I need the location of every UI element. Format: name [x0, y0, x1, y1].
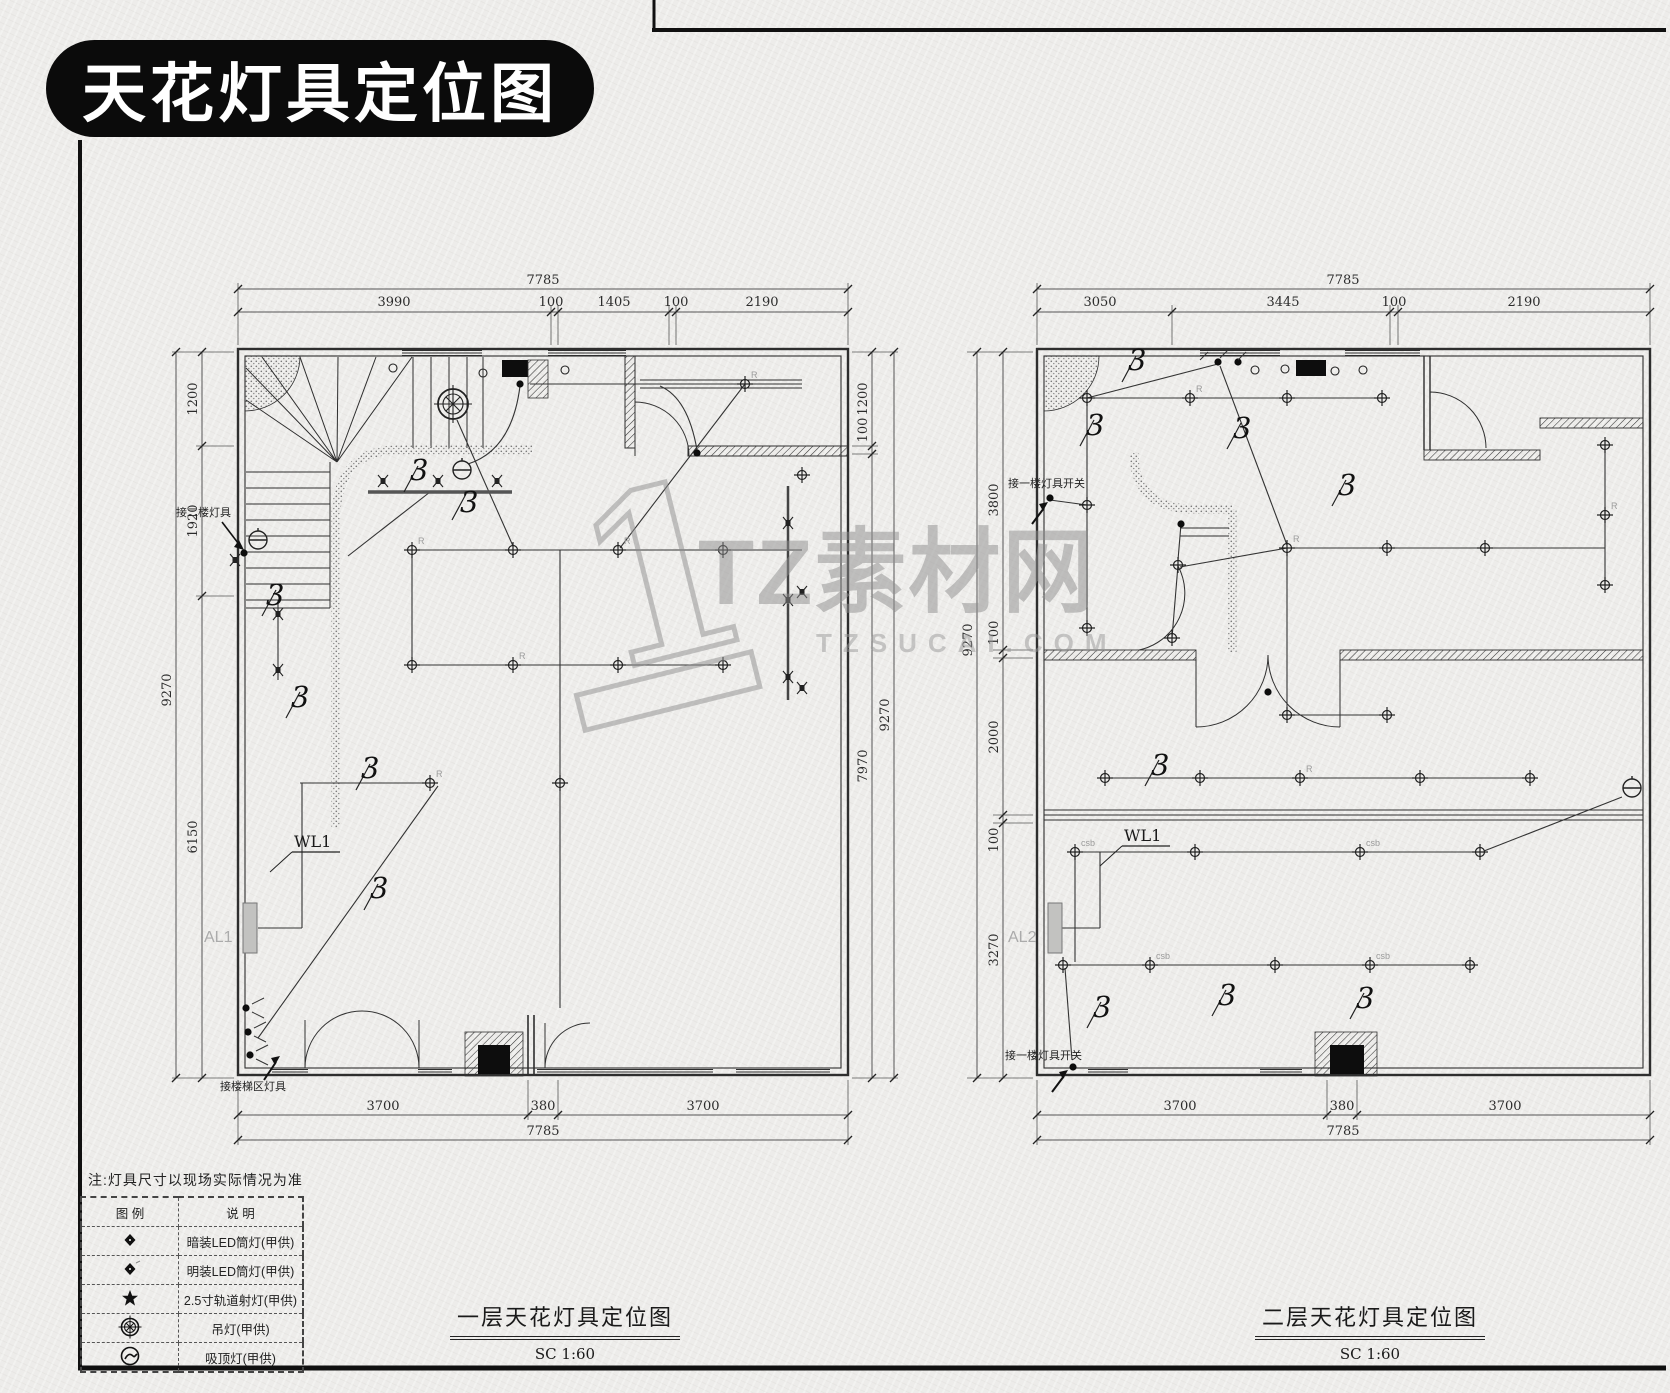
svg-text:3050: 3050 [1083, 295, 1116, 310]
legend-desc: 明装LED筒灯(甲供) [179, 1256, 304, 1285]
downlight-icon [1187, 844, 1203, 860]
svg-text:1200: 1200 [186, 382, 201, 415]
circuit-number: 3 [1233, 411, 1251, 445]
distribution-panel [1048, 903, 1062, 953]
ceiling-lamp-icon [453, 458, 471, 479]
light-code: R [751, 370, 758, 380]
downlight-icon [1597, 437, 1613, 453]
circuit-number: 3 [291, 680, 309, 714]
downlight-icon [1097, 770, 1113, 786]
circuit-number: 3 [1338, 468, 1356, 502]
ceiling-feature-black [1296, 360, 1326, 376]
second-floor-title: 二层天花灯具定位图 [1255, 1300, 1485, 1340]
legend-table: 图 例 说 明 暗装LED筒灯(甲供) 明装LED筒灯(甲供) 2.5寸轨道射灯… [80, 1196, 304, 1373]
switch-dot-icon [1046, 494, 1053, 501]
switch-dot-icon [240, 549, 247, 556]
svg-text:7970: 7970 [856, 749, 871, 782]
svg-text:2190: 2190 [1507, 295, 1540, 310]
title-banner: 天花灯具定位图 [46, 40, 594, 137]
recessed-downlight-icon [389, 364, 397, 372]
light-code: R [1196, 384, 1203, 394]
second-floor-circuit-labels: 3 3 3 3 3 3 3 3 [1080, 343, 1374, 1028]
first-floor-walls [238, 349, 848, 1075]
switch-dot-icon [1069, 1063, 1076, 1070]
svg-text:3700: 3700 [1163, 1099, 1196, 1114]
svg-text:100: 100 [1382, 295, 1407, 310]
pendant-light-icon [113, 1315, 147, 1339]
downlight-icon [715, 542, 731, 558]
recessed-led-downlight-icon [113, 1229, 147, 1251]
legend-col-symbol: 图 例 [81, 1197, 179, 1227]
svg-text:6150: 6150 [186, 820, 201, 853]
circuit-number: 3 [1356, 981, 1374, 1015]
surface-led-downlight-icon [113, 1258, 147, 1280]
first-floor-title: 一层天花灯具定位图 [450, 1300, 680, 1340]
legend-row: 吸顶灯(甲供) [81, 1343, 303, 1373]
downlight-icon [1477, 540, 1493, 556]
downlight-icon [1079, 497, 1095, 513]
fireplace [465, 1032, 523, 1076]
wl1-label: WL1 [294, 832, 331, 851]
svg-text:1200: 1200 [856, 382, 871, 415]
legend-col-desc: 说 明 [179, 1197, 304, 1227]
switch-dot-icon [516, 380, 523, 387]
svg-text:9270: 9270 [878, 698, 893, 731]
downlight-icon [1462, 957, 1478, 973]
downlight-icon [1597, 577, 1613, 593]
switch-dot-icon [244, 1028, 251, 1035]
downlight-icon [552, 775, 568, 791]
svg-text:2190: 2190 [745, 295, 778, 310]
legend-desc: 2.5寸轨道射灯(甲供) [179, 1285, 304, 1314]
svg-text:100: 100 [987, 621, 1002, 646]
first-floor-title-block: 一层天花灯具定位图 SC 1:60 [450, 1300, 680, 1363]
annotation-switch-bottom: 接一楼灯具开关 [1005, 1048, 1082, 1062]
switch-dot-icon [1214, 358, 1221, 365]
circuit-number: 3 [1151, 748, 1169, 782]
downlight-icon [1379, 707, 1395, 723]
switch-dot-icon [246, 1051, 253, 1058]
downlight-icon [1374, 390, 1390, 406]
downlight-icon [505, 542, 521, 558]
page-title: 天花灯具定位图 [82, 43, 558, 135]
downlight-icon [1522, 770, 1538, 786]
downlight-icon [1170, 557, 1186, 573]
drawing-sheet: R R R R R 3 3 3 3 3 3 接二楼灯具 WL1 AL1 接楼梯区… [0, 0, 1670, 1393]
first-floor-scale: SC 1:60 [450, 1345, 680, 1363]
distribution-panel [243, 903, 257, 953]
annotation-switch-top: 接一楼灯具开关 [1008, 476, 1085, 490]
svg-text:7785: 7785 [1326, 1124, 1359, 1139]
drawing-note: 注:灯具尺寸以现场实际情况为准 [88, 1170, 303, 1190]
legend-row: 暗装LED筒灯(甲供) [81, 1227, 303, 1256]
circuit-number: 3 [370, 871, 388, 905]
svg-text:1405: 1405 [597, 295, 630, 310]
svg-text:3990: 3990 [377, 295, 410, 310]
legend-desc: 吸顶灯(甲供) [179, 1343, 304, 1373]
switch-dot-icon [1177, 520, 1184, 527]
switch-dot-icon [693, 449, 700, 456]
svg-text:7785: 7785 [526, 1124, 559, 1139]
light-code: csb [1081, 838, 1095, 848]
track-spotlight-icon [113, 1287, 147, 1309]
ceiling-feature-hatch [528, 360, 548, 398]
second-floor-scale: SC 1:60 [1255, 1345, 1485, 1363]
svg-text:1920: 1920 [186, 504, 201, 537]
wall-light-icon [797, 682, 807, 694]
svg-text:2000: 2000 [987, 720, 1002, 753]
svg-text:100: 100 [987, 828, 1002, 853]
ceiling-lamp-icon [113, 1344, 147, 1368]
track-spotlight-icon [492, 475, 502, 487]
recessed-downlight-icon [1359, 366, 1367, 374]
circuit-number: 3 [460, 485, 478, 519]
svg-text:100: 100 [539, 295, 564, 310]
circuit-number: 3 [1086, 408, 1104, 442]
switch-dot-icon [242, 1004, 249, 1011]
downlight-icon [1192, 770, 1208, 786]
svg-text:3700: 3700 [366, 1099, 399, 1114]
dimension-ticks [172, 285, 898, 1144]
legend-desc: 暗装LED筒灯(甲供) [179, 1227, 304, 1256]
circuit-number: 3 [1218, 978, 1236, 1012]
svg-text:9270: 9270 [160, 673, 175, 706]
circuit-number: 3 [1128, 343, 1146, 377]
first-floor-lights: R R R R R [230, 360, 810, 1076]
ceiling-lamp-icon [249, 528, 267, 549]
first-floor-plan: R R R R R 3 3 3 3 3 3 接二楼灯具 WL1 AL1 接楼梯区… [160, 273, 898, 1145]
wall-light-icon [797, 586, 807, 598]
downlight-icon [1267, 957, 1283, 973]
second-floor-plan: R R R R csb csb csb csb 3 3 3 3 3 3 3 3 … [961, 273, 1654, 1145]
svg-text:100: 100 [856, 418, 871, 443]
downlight-icon [715, 657, 731, 673]
circuit-number: 3 [361, 751, 379, 785]
light-code: R [436, 769, 443, 779]
light-code: R [519, 651, 526, 661]
circuit-number: 3 [266, 578, 284, 612]
light-code: csb [1156, 951, 1170, 961]
annotation-stair-lights: 接楼梯区灯具 [220, 1079, 286, 1093]
downlight-icon [610, 657, 626, 673]
svg-text:3270: 3270 [987, 933, 1002, 966]
downlight-icon [1472, 844, 1488, 860]
svg-text:9270: 9270 [961, 623, 976, 656]
ceiling-feature-black [502, 360, 528, 377]
legend-row: 2.5寸轨道射灯(甲供) [81, 1285, 303, 1314]
downlight-icon [1279, 390, 1295, 406]
svg-text:380: 380 [1330, 1099, 1355, 1114]
downlight-icon [1379, 540, 1395, 556]
legend-row: 明装LED筒灯(甲供) [81, 1256, 303, 1285]
fireplace [1315, 1032, 1377, 1076]
legend-row: 吊灯(甲供) [81, 1314, 303, 1343]
light-code: R [1611, 501, 1618, 511]
light-code: csb [1376, 951, 1390, 961]
ceiling-lamp-icon [1623, 776, 1641, 797]
svg-text:7785: 7785 [1326, 273, 1359, 288]
light-code: R [418, 536, 425, 546]
al1-label: AL1 [204, 929, 233, 946]
legend-header-row: 图 例 说 明 [81, 1197, 303, 1227]
pendant-light-icon [434, 385, 472, 423]
second-floor-walls [1037, 349, 1650, 1075]
svg-text:7785: 7785 [526, 273, 559, 288]
annotation-second-floor: 接二楼灯具 [176, 505, 231, 519]
circuit-number: 3 [410, 453, 428, 487]
legend-desc: 吊灯(甲供) [179, 1314, 304, 1343]
downlight-icon [1412, 770, 1428, 786]
downlight-icon [1055, 957, 1071, 973]
second-floor-title-block: 二层天花灯具定位图 SC 1:60 [1255, 1300, 1485, 1363]
switch-dot-icon [1264, 688, 1271, 695]
track-spotlight-icon [378, 475, 388, 487]
light-code: csb [1366, 838, 1380, 848]
recessed-downlight-icon [1331, 367, 1339, 375]
recessed-downlight-icon [1281, 365, 1289, 373]
stair [245, 356, 532, 828]
svg-text:100: 100 [664, 295, 689, 310]
light-code: R [1293, 534, 1300, 544]
svg-text:3445: 3445 [1266, 295, 1299, 310]
downlight-icon [794, 467, 810, 483]
downlight-icon [404, 657, 420, 673]
wl1-label: WL1 [1124, 826, 1161, 845]
al2-label: AL2 [1008, 929, 1037, 946]
svg-text:3700: 3700 [686, 1099, 719, 1114]
svg-text:3800: 3800 [987, 483, 1002, 516]
first-floor-annotations: 接二楼灯具 WL1 AL1 接楼梯区灯具 [176, 505, 340, 1093]
svg-text:3700: 3700 [1488, 1099, 1521, 1114]
light-code: R [1306, 764, 1313, 774]
light-code: R [624, 536, 631, 546]
recessed-downlight-icon [561, 366, 569, 374]
downlight-icon [1164, 630, 1180, 646]
circuit-number: 3 [1093, 990, 1111, 1024]
track-spotlight-icon [433, 475, 443, 487]
svg-text:380: 380 [531, 1099, 556, 1114]
recessed-downlight-icon [1251, 366, 1259, 374]
downlight-icon [1079, 620, 1095, 636]
